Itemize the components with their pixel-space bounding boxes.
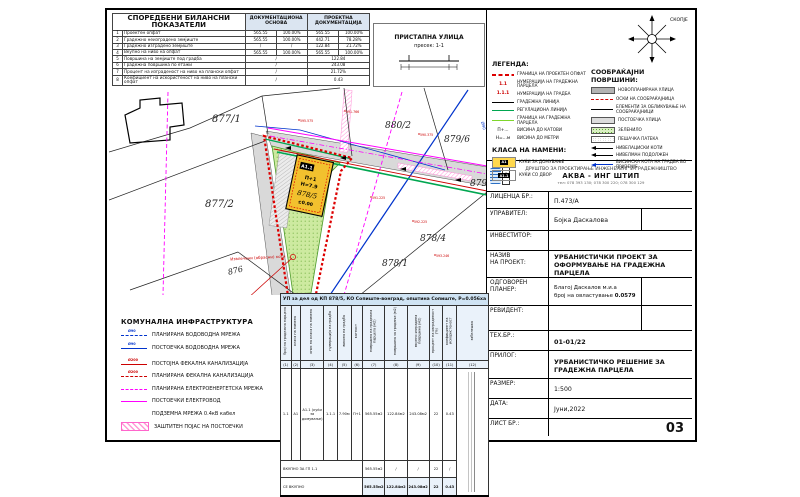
line-swatch-icon bbox=[121, 397, 147, 405]
col-index: (4) bbox=[324, 361, 338, 369]
col-header: опис на класа на намена bbox=[301, 306, 324, 361]
legend-item-label: РЕГУЛАЦИОНА ЛИНИЈА bbox=[517, 108, 567, 113]
line-swatch-icon bbox=[591, 107, 613, 113]
legend-item-label: НУМЕРАЦИЈА НА ГРАДБА bbox=[517, 92, 570, 97]
col-index: (11) bbox=[443, 361, 457, 369]
infrastructure-legend: КОМУНАЛНА ИНФРАСТРУКТУРА Ø90ПЛАНИРАНА ВО… bbox=[121, 318, 289, 436]
legend-item-label: ГРАНИЦА НА ПРОЕКТЕН ОПФАТ bbox=[517, 72, 586, 77]
building-level-symbol-icon bbox=[591, 163, 613, 167]
compass-city-label: СКОПЈЕ bbox=[670, 17, 688, 23]
cell: А1 bbox=[291, 369, 300, 461]
legend-item-label: ПЛАНИРАНА ВОДОВОДНА МРЕЖА bbox=[152, 332, 240, 338]
legend-column: ЛЕГЕНДА: ГРАНИЦА НА ПРОЕКТЕН ОПФАТ 1.1НУ… bbox=[487, 10, 588, 160]
sheet-number-value: 03 bbox=[549, 419, 692, 436]
line-swatch-icon bbox=[492, 71, 514, 77]
cell: 22 bbox=[429, 478, 443, 496]
pedestrian-swatch-icon bbox=[591, 136, 615, 143]
class-swatch-icon: А1 bbox=[492, 157, 516, 168]
legend-item: ЗЕЛЕНИЛО bbox=[591, 127, 692, 134]
col-header: вкупно изградена површина (м2) bbox=[407, 306, 429, 361]
parcel-label: 876 bbox=[227, 264, 244, 276]
legend-item: НОВОПЛАНИРАНА УЛИЦА bbox=[591, 87, 692, 94]
cell: А1.1 (куќи за домување) bbox=[301, 369, 324, 461]
balance-col-project: ПРОЕКТНА ДОКУМЕНТАЦИЈА bbox=[307, 14, 369, 31]
legend-item: П+...ВИСИНА ДО КАТОВИ bbox=[492, 128, 588, 133]
legend-item: Ø90ПОСТОЕЧКА ВОДОВОДНА МРЕЖА bbox=[121, 344, 289, 352]
line-swatch-icon: Ø90 bbox=[121, 344, 147, 352]
cell: 122.84м2 bbox=[385, 369, 407, 461]
cell: 565.55м2 bbox=[363, 460, 385, 477]
cell: 7.90м bbox=[337, 369, 351, 461]
signature-box bbox=[641, 209, 692, 230]
cell: 0.43 bbox=[307, 75, 369, 86]
elevation-value: 591.225 bbox=[372, 196, 385, 200]
col-header: површина на градежна парцела (м2) bbox=[363, 306, 385, 361]
parcel-label: 879 bbox=[470, 179, 487, 189]
balance-header-row: СПОРЕДБЕНИ БИЛАНСНИ ПОКАЗАТЕЛИ ДОКУМЕНТА… bbox=[113, 14, 370, 31]
legend-item: Н=...мВИСИНА ДО МЕТРИ bbox=[492, 136, 588, 141]
pipe-tag: Ø200 bbox=[128, 358, 138, 362]
field-label: ЛИЦЕНЦА БР.: bbox=[487, 192, 549, 208]
road-swatch-icon bbox=[591, 117, 615, 124]
col-header: катност bbox=[351, 306, 363, 361]
legend-item-label: ПОДЗЕМНА МРЕЖА 0.4кВ кабел bbox=[152, 411, 235, 417]
elevation-value: 590.375 bbox=[420, 133, 433, 137]
street-section-sketch bbox=[379, 49, 479, 73]
infrastructure-title: КОМУНАЛНА ИНФРАСТРУКТУРА bbox=[121, 318, 289, 326]
parcel-label: 878/1 bbox=[382, 259, 408, 269]
col-index: (6) bbox=[351, 361, 363, 369]
line-swatch-icon bbox=[492, 99, 514, 105]
line-swatch-icon bbox=[492, 108, 514, 114]
cell: 122.84м2 bbox=[385, 478, 407, 496]
legend-item-label: ЕЛЕМЕНТИ ЗА ОБЛИКУВАЊЕ НА СООБРАЌАЈНИЦИ bbox=[616, 105, 692, 114]
field-label: УПРАВИТЕЛ: bbox=[487, 209, 549, 230]
planner-value: Благој Даскалов м.и.а број на овластувањ… bbox=[549, 278, 641, 305]
parcel-label: 878/4 bbox=[420, 234, 446, 244]
signature-box bbox=[641, 306, 692, 330]
legend-item-label: НИВЕЛАЦИСКИ КОТИ bbox=[616, 146, 663, 151]
legend-item: ЗАШТИТЕН ПОЈАС НА ПОСТОЕЧКИ bbox=[121, 422, 289, 431]
signature-box bbox=[641, 278, 692, 305]
legend-item: ОСКИ НА СООБРАЌАЈНИЦА bbox=[591, 97, 692, 103]
legend-item: Ø90ПЛАНИРАНА ВОДОВОДНА МРЕЖА bbox=[121, 331, 289, 339]
col-index: (7) bbox=[363, 361, 385, 369]
license-row: ЛИЦЕНЦА БР.: П.473/А bbox=[487, 191, 692, 208]
cell: 22 bbox=[429, 369, 443, 461]
legend-item-label: ЗЕЛЕНИЛО bbox=[618, 128, 642, 133]
cell: 565.55м2 bbox=[363, 369, 385, 461]
elevation-value: 595.575 bbox=[300, 119, 313, 123]
line-swatch-icon bbox=[492, 118, 514, 124]
numbering-mark: 1.1 bbox=[492, 82, 514, 87]
numbering-mark: 1.1.1 bbox=[492, 91, 514, 96]
legend-item-label: КУЌИ ЗА ДОМУВАЊЕ bbox=[519, 160, 564, 165]
site-plan-map: А1.1 П+1 Н=7.9 878/5 ±0.00 877/1 877/2 8… bbox=[109, 86, 487, 295]
field-label: ИНВЕСТИТОР: bbox=[487, 231, 549, 250]
license-value: П.473/А bbox=[549, 192, 692, 208]
line-swatch-icon bbox=[591, 97, 613, 103]
col-index: (1) bbox=[281, 361, 292, 369]
col-header: процент на изграденост (%) bbox=[429, 306, 443, 361]
cell: / bbox=[443, 460, 457, 477]
spacer bbox=[121, 410, 147, 418]
legend-item: ПОСТОЕЧКА УЛИЦА bbox=[591, 117, 692, 124]
scale-value: 1:500 bbox=[549, 379, 692, 398]
cell: 22 bbox=[429, 460, 443, 477]
cell: / bbox=[407, 460, 429, 477]
balance-table: СПОРЕДБЕНИ БИЛАНСНИ ПОКАЗАТЕЛИ ДОКУМЕНТА… bbox=[112, 13, 370, 86]
land-use-classes: КЛАСА НА НАМЕНИ: А1КУЌИ ЗА ДОМУВАЊЕ А1.1… bbox=[492, 146, 588, 182]
legend-item: ПОСТОЕЧКИ ЕЛЕКТРОВОД bbox=[121, 397, 289, 405]
reviewer-row: РЕВИДЕНТ: bbox=[487, 305, 692, 330]
height-mark: Н=...м bbox=[492, 136, 514, 141]
investor-row: ИНВЕСТИТОР: bbox=[487, 230, 692, 250]
title-block-panel: ЛЕГЕНДА: ГРАНИЦА НА ПРОЕКТЕН ОПФАТ 1.1НУ… bbox=[486, 10, 692, 436]
line-swatch-icon bbox=[121, 385, 147, 393]
col-index: (9) bbox=[407, 361, 429, 369]
planner-authorization: број на овластување 0.0579 bbox=[554, 293, 641, 300]
legend-item-label: ПОСТОЕЧКИ ЕЛЕКТРОВОД bbox=[152, 398, 221, 404]
legend-item-label: ОСКИ НА СООБРАЌАЈНИЦА bbox=[616, 97, 674, 102]
line-swatch-icon: Ø200 bbox=[121, 360, 147, 368]
cell: / bbox=[385, 460, 407, 477]
col-header: висина на градба bbox=[337, 306, 351, 361]
street-section-title: ПРИСТАПНА УЛИЦА bbox=[374, 34, 484, 41]
legend-item-label: ГРАДЕЖНА ЛИНИЈА bbox=[517, 100, 559, 105]
parcel-label: 877/1 bbox=[212, 114, 241, 125]
cell: 243.08м2 bbox=[407, 478, 429, 496]
street-section-box: ПРИСТАПНА УЛИЦА пресек: 1-1 bbox=[373, 23, 485, 87]
date-row: ДАТА: Јуни,2022 bbox=[487, 398, 692, 418]
cell: П+1 bbox=[351, 369, 363, 461]
index-row: (1) (2) (3) (4) (5) (6) (7) (8) (9) (10)… bbox=[281, 361, 489, 369]
legend-item: А1КУЌИ ЗА ДОМУВАЊЕ bbox=[492, 157, 588, 168]
legend-item: НИВЕЛМАН ПОДОЛЖЕН bbox=[591, 153, 692, 158]
structure-table: УП за дел од КП 878/5, КО Сопиште-вонгра… bbox=[280, 293, 489, 497]
col-index: (8) bbox=[385, 361, 407, 369]
legend-item-label: ПОСТОЕЧКА ВОДОВОДНА МРЕЖА bbox=[152, 345, 240, 351]
legend-item: НИВЕЛАЦИСКИ КОТИ bbox=[591, 146, 692, 151]
data-row: 1.1 А1 А1.1 (куќи за домување) 1.1.1 7.9… bbox=[281, 369, 489, 461]
cell: 565.55м2 bbox=[363, 478, 385, 496]
legend-item-label: ПЕШАЧКА ПАТЕКА bbox=[618, 137, 658, 142]
scale-row: РАЗМЕР: 1:500 bbox=[487, 378, 692, 398]
cell: 1.1.1 bbox=[324, 369, 338, 461]
traffic-title: СООБРАЌАЈНИ ПОВРШИНИ: bbox=[591, 68, 692, 84]
parcel-label: 879/6 bbox=[444, 135, 470, 145]
col-header: нумерација на градба bbox=[324, 306, 338, 361]
height-mark: П+... bbox=[492, 128, 514, 133]
remark-cell bbox=[457, 369, 489, 497]
project-name-row: НАЗИВНА ПРОЕКТ: УРБАНИСТИЧКИ ПРОЕКТ ЗА О… bbox=[487, 250, 692, 277]
parcel-label: 877/2 bbox=[205, 199, 234, 210]
legend-item: РЕГУЛАЦИОНА ЛИНИЈА bbox=[492, 108, 588, 114]
legend-item-label: НУМЕРАЦИЈА НА ГРАДЕЖНА ПАРЦЕЛА bbox=[517, 80, 588, 89]
field-label: ОДГОВОРЕНПЛАНЕР: bbox=[487, 278, 549, 305]
legend-item-label: КУЌИ СО ДВОР bbox=[519, 173, 551, 178]
cell: 0.43 bbox=[443, 478, 457, 496]
legend-item: А1.1КУЌИ СО ДВОР bbox=[492, 170, 588, 181]
legend-item: ПЛАНИРАНА ЕЛЕКТРОЕНЕРГЕТСКА МРЕЖА bbox=[121, 385, 289, 393]
col-header: класа на намена bbox=[291, 306, 300, 361]
legend-item-label: НИВЕЛМАН ПОДОЛЖЕН bbox=[616, 153, 668, 158]
col-index: (12) bbox=[457, 361, 489, 369]
legend-item: Ø200ПОСТОЈНА ФЕКАЛНА КАНАЛИЗАЦИЈА bbox=[121, 360, 289, 368]
legend-item: ВИСИНСКА КОТА НА ГРАДБА ВО ПРИЗЕМЈЕ bbox=[591, 160, 692, 169]
road-swatch-icon bbox=[591, 87, 615, 94]
col-header: површина за градење (м2) bbox=[385, 306, 407, 361]
legend-item-label: ПЛАНИРАНА ФЕКАЛНА КАНАЛИЗАЦИЈА bbox=[152, 373, 253, 379]
legend-area: ЛЕГЕНДА: ГРАНИЦА НА ПРОЕКТЕН ОПФАТ 1.1НУ… bbox=[487, 10, 692, 160]
legend-item: ГРАДЕЖНА ЛИНИЈА bbox=[492, 99, 588, 105]
legend-item: Ø200ПЛАНИРАНА ФЕКАЛНА КАНАЛИЗАЦИЈА bbox=[121, 372, 289, 380]
parcel-label: 880/2 bbox=[385, 121, 411, 131]
field-label: ПРИЛОГ: bbox=[487, 351, 549, 378]
legend-item-label: ВИСИНА ДО КАТОВИ bbox=[517, 128, 562, 133]
balance-title: СПОРЕДБЕНИ БИЛАНСНИ ПОКАЗАТЕЛИ bbox=[113, 14, 246, 31]
col-index: (2) bbox=[291, 361, 300, 369]
legend-item: ПЕШАЧКА ПАТЕКА bbox=[591, 136, 692, 143]
sheet-number-row: ЛИСТ БР.: 03 bbox=[487, 418, 692, 436]
col-index: (3) bbox=[301, 361, 324, 369]
reviewer-value bbox=[549, 306, 641, 330]
pipe-tag: Ø90 bbox=[128, 342, 136, 346]
elevation-value: 593.246 bbox=[436, 254, 449, 258]
attachment-row: ПРИЛОГ: УРБАНИСТИЧКО РЕШЕНИЕ ЗА ГРАДЕЖНА… bbox=[487, 350, 692, 378]
col-header: коефициент на искористеност bbox=[443, 306, 457, 361]
pipe-tag: Ø200 bbox=[128, 370, 138, 374]
investor-value bbox=[549, 231, 692, 250]
legend-item-label: ПОСТОЈНА ФЕКАЛНА КАНАЛИЗАЦИЈА bbox=[152, 361, 248, 367]
line-swatch-icon: Ø90 bbox=[121, 331, 147, 339]
structure-table-wrap: УП за дел од КП 878/5, КО Сопиште-вонгра… bbox=[280, 293, 489, 497]
traffic-legend-column: СКОПЈЕ СООБРАЌАЈНИ ПОВРШИНИ: НОВОПЛАНИРА… bbox=[588, 10, 692, 160]
line-swatch-icon: Ø200 bbox=[121, 372, 147, 380]
planner-name: Благој Даскалов м.и.а bbox=[554, 285, 641, 292]
legend-item-label: ЗАШТИТЕН ПОЈАС НА ПОСТОЕЧКИ bbox=[154, 424, 243, 430]
date-value: Јуни,2022 bbox=[549, 399, 692, 418]
legend-title: ЛЕГЕНДА: bbox=[492, 60, 588, 68]
compass-rose-icon: СКОПЈЕ bbox=[626, 13, 688, 65]
col-index: (5) bbox=[337, 361, 351, 369]
row-index: 8 bbox=[113, 75, 123, 86]
hatch-swatch-icon bbox=[121, 422, 149, 431]
legend-item-label: ВИСИНСКА КОТА НА ГРАДБА ВО ПРИЗЕМЈЕ bbox=[616, 160, 692, 169]
field-label: ЛИСТ БР.: bbox=[487, 419, 549, 436]
field-label: РАЗМЕР: bbox=[487, 379, 549, 398]
legend-item: ЕЛЕМЕНТИ ЗА ОБЛИКУВАЊЕ НА СООБРАЌАЈНИЦИ bbox=[591, 105, 692, 114]
manager-row: УПРАВИТЕЛ: Бојка Даскалова bbox=[487, 208, 692, 230]
rotated-header-row: број на градежна парцела класа на намена… bbox=[281, 306, 489, 361]
cell: 0.43 bbox=[443, 369, 457, 461]
legend-item: 1.1НУМЕРАЦИЈА НА ГРАДЕЖНА ПАРЦЕЛА bbox=[492, 80, 588, 89]
class-swatch-icon: А1.1 bbox=[492, 170, 516, 181]
structure-table-header: УП за дел од КП 878/5, КО Сопиште-вонгра… bbox=[281, 294, 489, 306]
planner-row: ОДГОВОРЕНПЛАНЕР: Благој Даскалов м.и.а б… bbox=[487, 277, 692, 305]
existing-house-outline bbox=[125, 98, 184, 143]
legend-item-label: ГРАНИЦА НА ГРАДЕЖНА ПАРЦЕЛА bbox=[517, 116, 588, 125]
cell: / bbox=[245, 75, 307, 86]
levelling-symbol-icon bbox=[591, 146, 613, 150]
gradient-symbol-icon bbox=[591, 153, 613, 157]
subtotal-label: ВКУПНО ЗА ГП 1.1 bbox=[281, 460, 363, 477]
cell: 243.08м2 bbox=[407, 369, 429, 461]
field-label: РЕВИДЕНТ: bbox=[487, 306, 549, 330]
manager-value: Бојка Даскалова bbox=[549, 209, 641, 230]
tech-number-value: 01-01/22 bbox=[549, 331, 692, 350]
table-row: 8Коефициент на искористеност на ниво на … bbox=[113, 75, 370, 86]
cell: 1.1 bbox=[281, 369, 292, 461]
class-title: КЛАСА НА НАМЕНИ: bbox=[492, 146, 588, 154]
legend-item-label: ПОСТОЕЧКА УЛИЦА bbox=[618, 118, 661, 123]
field-label: ДАТА: bbox=[487, 399, 549, 418]
remark-text-lines bbox=[468, 372, 477, 492]
balance-col-documentation: ДОКУМЕНТАЦИОНА ОСНОВА bbox=[245, 14, 307, 31]
field-label: ТЕХ.БР.: bbox=[487, 331, 549, 350]
legend-item: ГРАНИЦА НА ГРАДЕЖНА ПАРЦЕЛА bbox=[492, 116, 588, 125]
legend-item: 1.1.1НУМЕРАЦИЈА НА ГРАДБА bbox=[492, 91, 588, 96]
legend-item-label: ВИСИНА ДО МЕТРИ bbox=[517, 136, 559, 141]
col-header: број на градежна парцела bbox=[281, 306, 292, 361]
drawing-sheet: СПОРЕДБЕНИ БИЛАНСНИ ПОКАЗАТЕЛИ ДОКУМЕНТА… bbox=[105, 8, 697, 442]
elevation-value: 591.766 bbox=[346, 110, 359, 114]
greenery-swatch-icon bbox=[591, 127, 615, 134]
col-header: забелешка bbox=[457, 306, 489, 361]
elevation-value: 592.225 bbox=[414, 220, 427, 224]
col-index: (10) bbox=[429, 361, 443, 369]
pipe-tag: Ø90 bbox=[128, 329, 136, 333]
legend-item-label: НОВОПЛАНИРАНА УЛИЦА bbox=[618, 88, 674, 93]
row-label: Коефициент на искористеност на ниво на п… bbox=[123, 75, 245, 86]
legend-item: ГРАНИЦА НА ПРОЕКТЕН ОПФАТ bbox=[492, 71, 588, 77]
legend-item: ПОДЗЕМНА МРЕЖА 0.4кВ кабел bbox=[121, 410, 289, 418]
field-label: НАЗИВНА ПРОЕКТ: bbox=[487, 251, 549, 277]
attachment-value: УРБАНИСТИЧКО РЕШЕНИЕ ЗА ГРАДЕЖНА ПАРЦЕЛА bbox=[549, 351, 692, 378]
tech-number-row: ТЕХ.БР.: 01-01/22 bbox=[487, 330, 692, 350]
project-name-value: УРБАНИСТИЧКИ ПРОЕКТ ЗА ОФОРМУВАЊЕ НА ГРА… bbox=[549, 251, 692, 277]
total-label: СЕ ВКУПНО bbox=[281, 478, 363, 496]
legend-item-label: ПЛАНИРАНА ЕЛЕКТРОЕНЕРГЕТСКА МРЕЖА bbox=[152, 386, 263, 392]
